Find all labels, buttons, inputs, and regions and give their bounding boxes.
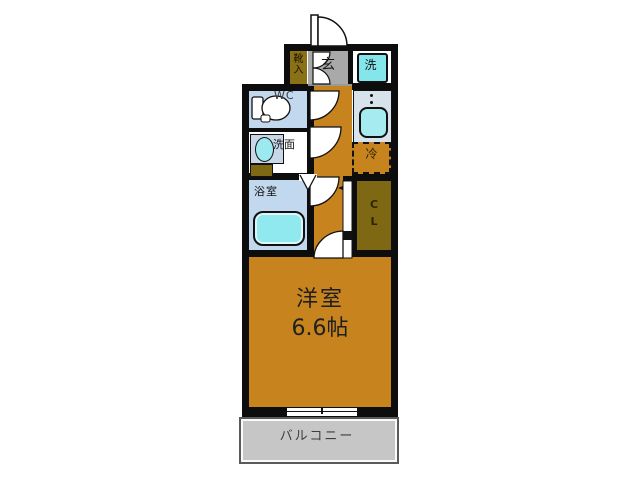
washer-label: 洗	[357, 59, 384, 72]
wall-hall-left	[307, 84, 314, 258]
closet-char-2: L	[370, 215, 377, 228]
toilet-label: WC	[274, 90, 295, 102]
main-room-size: 6.6帖	[258, 317, 382, 341]
wall-right	[391, 44, 398, 417]
closet-label: CL	[357, 197, 391, 230]
kitchen-sink-icon	[359, 107, 388, 138]
entrance-door-swing-icon	[318, 17, 347, 46]
refrigerator-label: 冷	[352, 148, 391, 161]
closet-door-frame	[343, 181, 352, 258]
balcony-label: バルコニー	[239, 430, 395, 444]
bathtub-icon	[253, 211, 305, 246]
closet-char-1: C	[370, 198, 378, 211]
hallway-floor-lower	[314, 174, 343, 258]
closet-door-stop	[343, 231, 352, 240]
stove-dot-icon	[370, 101, 373, 104]
wall-top	[284, 44, 398, 51]
balcony-window-icon	[287, 408, 357, 416]
window-latch	[321, 408, 323, 414]
bathroom-label: 浴室	[254, 186, 278, 198]
sink-bowl-icon	[255, 137, 274, 162]
floor-plan-canvas: 靴入 玄 洗 WC 洗面 浴室 冷 CL 洋室 6.6帖 バルコニー	[0, 0, 640, 480]
washer-pan-icon	[250, 164, 273, 177]
main-room-label: 洋室	[258, 288, 382, 312]
washroom-label: 洗面	[273, 139, 295, 151]
wall-washer-bottom	[348, 83, 398, 90]
entrance-door-leaf-icon	[311, 15, 318, 46]
hallway-floor-upper	[314, 84, 352, 176]
shoe-char-2: 入	[294, 65, 304, 76]
shoe-char-1: 靴	[294, 54, 304, 65]
stove-dot-icon	[370, 94, 373, 97]
shoe-cabinet-label: 靴入	[291, 54, 306, 76]
entrance-label: 玄	[308, 58, 348, 73]
